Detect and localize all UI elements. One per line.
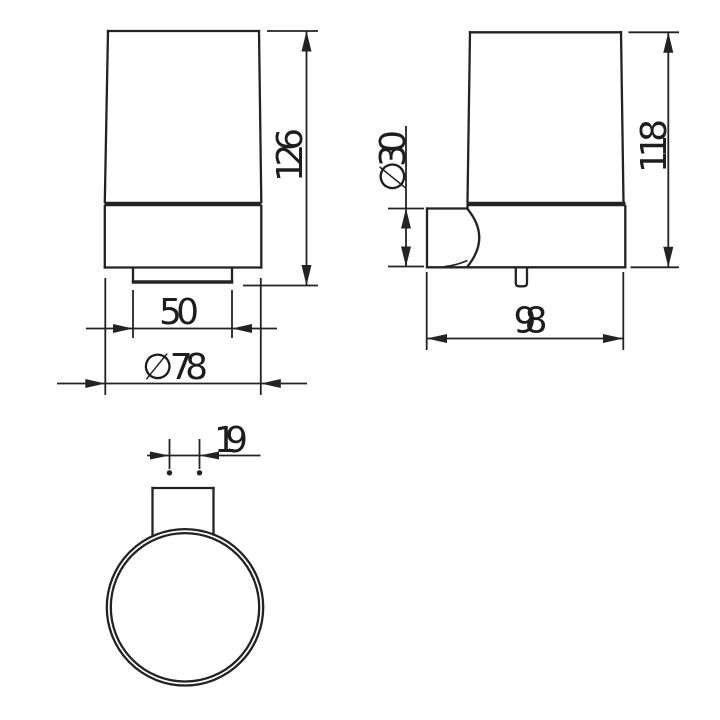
arrow-left-icon — [427, 334, 447, 343]
holder-base — [132, 269, 233, 283]
dimension-bracket-diameter-30: ∅ 30 — [373, 126, 424, 267]
cup-outline-side — [468, 32, 624, 202]
arrow-right-icon — [113, 324, 133, 333]
arrow-left-icon — [261, 379, 281, 388]
reference-dot — [167, 470, 172, 475]
arrow-up-icon — [663, 32, 673, 53]
dim-label-base-width: 50 — [159, 292, 199, 333]
bracket-cylinder-arc — [468, 206, 480, 267]
arrow-left-icon — [232, 324, 252, 333]
front-view: 126 50 ∅ 78 — [57, 31, 318, 395]
dimension-depth-98: 98 — [427, 272, 624, 350]
mounting-pin — [516, 269, 527, 286]
technical-drawing: 126 50 ∅ 78 — [0, 0, 720, 720]
holder-band — [105, 206, 261, 268]
cup-outline — [105, 31, 261, 202]
dimension-base-width-50: 50 — [86, 290, 277, 338]
dim-label-bracket-width: 19 — [214, 420, 248, 461]
arrow-right-icon — [150, 452, 170, 460]
dimension-height-118: 118 — [629, 32, 680, 267]
arrow-up-icon — [401, 209, 411, 229]
holder-ring — [107, 529, 263, 685]
wall-bracket — [427, 206, 479, 268]
top-view: 19 — [107, 420, 263, 686]
dim-label-front-height: 126 — [270, 128, 311, 182]
arrow-right-icon — [85, 379, 105, 388]
arrow-down-icon — [401, 247, 411, 267]
dim-label-diameter: ∅ 78 — [142, 347, 208, 388]
arrow-right-icon — [603, 334, 623, 343]
side-view: 118 ∅ 30 98 — [373, 32, 679, 350]
holder-band-side — [427, 206, 625, 267]
outer-circle — [107, 529, 263, 685]
dim-label-depth: 98 — [514, 301, 548, 342]
dim-label-side-height: 118 — [634, 119, 675, 173]
dimension-height-126: 126 — [243, 31, 318, 286]
reference-dot — [197, 470, 202, 475]
dimension-bracket-width-19: 19 — [147, 420, 261, 475]
inner-circle — [111, 533, 259, 681]
drawing-sheet: 126 50 ∅ 78 — [0, 0, 720, 720]
dim-label-bracket-diameter: ∅ 30 — [373, 130, 414, 192]
bracket-lower-curve — [445, 261, 468, 267]
arrow-down-icon — [663, 247, 673, 267]
arrow-down-icon — [302, 265, 312, 286]
arrow-up-icon — [302, 31, 312, 52]
